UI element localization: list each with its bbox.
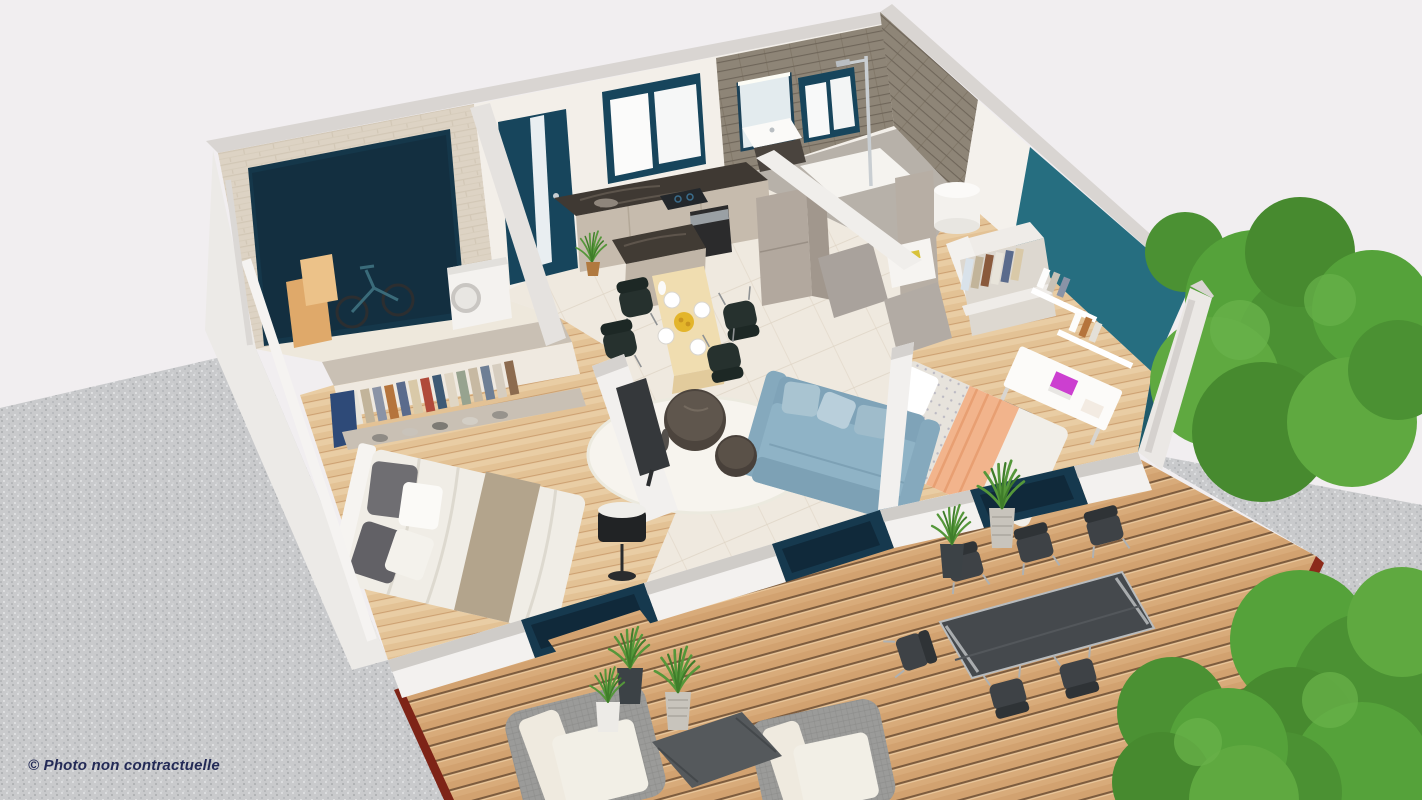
fruit-bowl	[674, 312, 694, 332]
copyright-caption: © Photo non contractuelle	[28, 757, 220, 774]
pillow	[398, 481, 444, 530]
plate	[690, 339, 706, 355]
floor-plan-render: © Photo non contractuelle	[0, 0, 1422, 800]
bottle	[658, 281, 666, 295]
cardboard-box-top	[300, 254, 338, 306]
kitchen-sink	[594, 199, 618, 208]
apartment-3d-scene	[0, 0, 1422, 800]
pillow	[781, 381, 821, 418]
plate	[694, 302, 710, 318]
laundry-basket	[934, 182, 980, 234]
plate	[658, 328, 674, 344]
faucet	[770, 128, 775, 133]
washer-door	[453, 285, 479, 311]
shoes	[372, 434, 388, 442]
bathroom-window	[798, 67, 860, 143]
plate	[664, 292, 680, 308]
washing-machine	[447, 257, 512, 330]
